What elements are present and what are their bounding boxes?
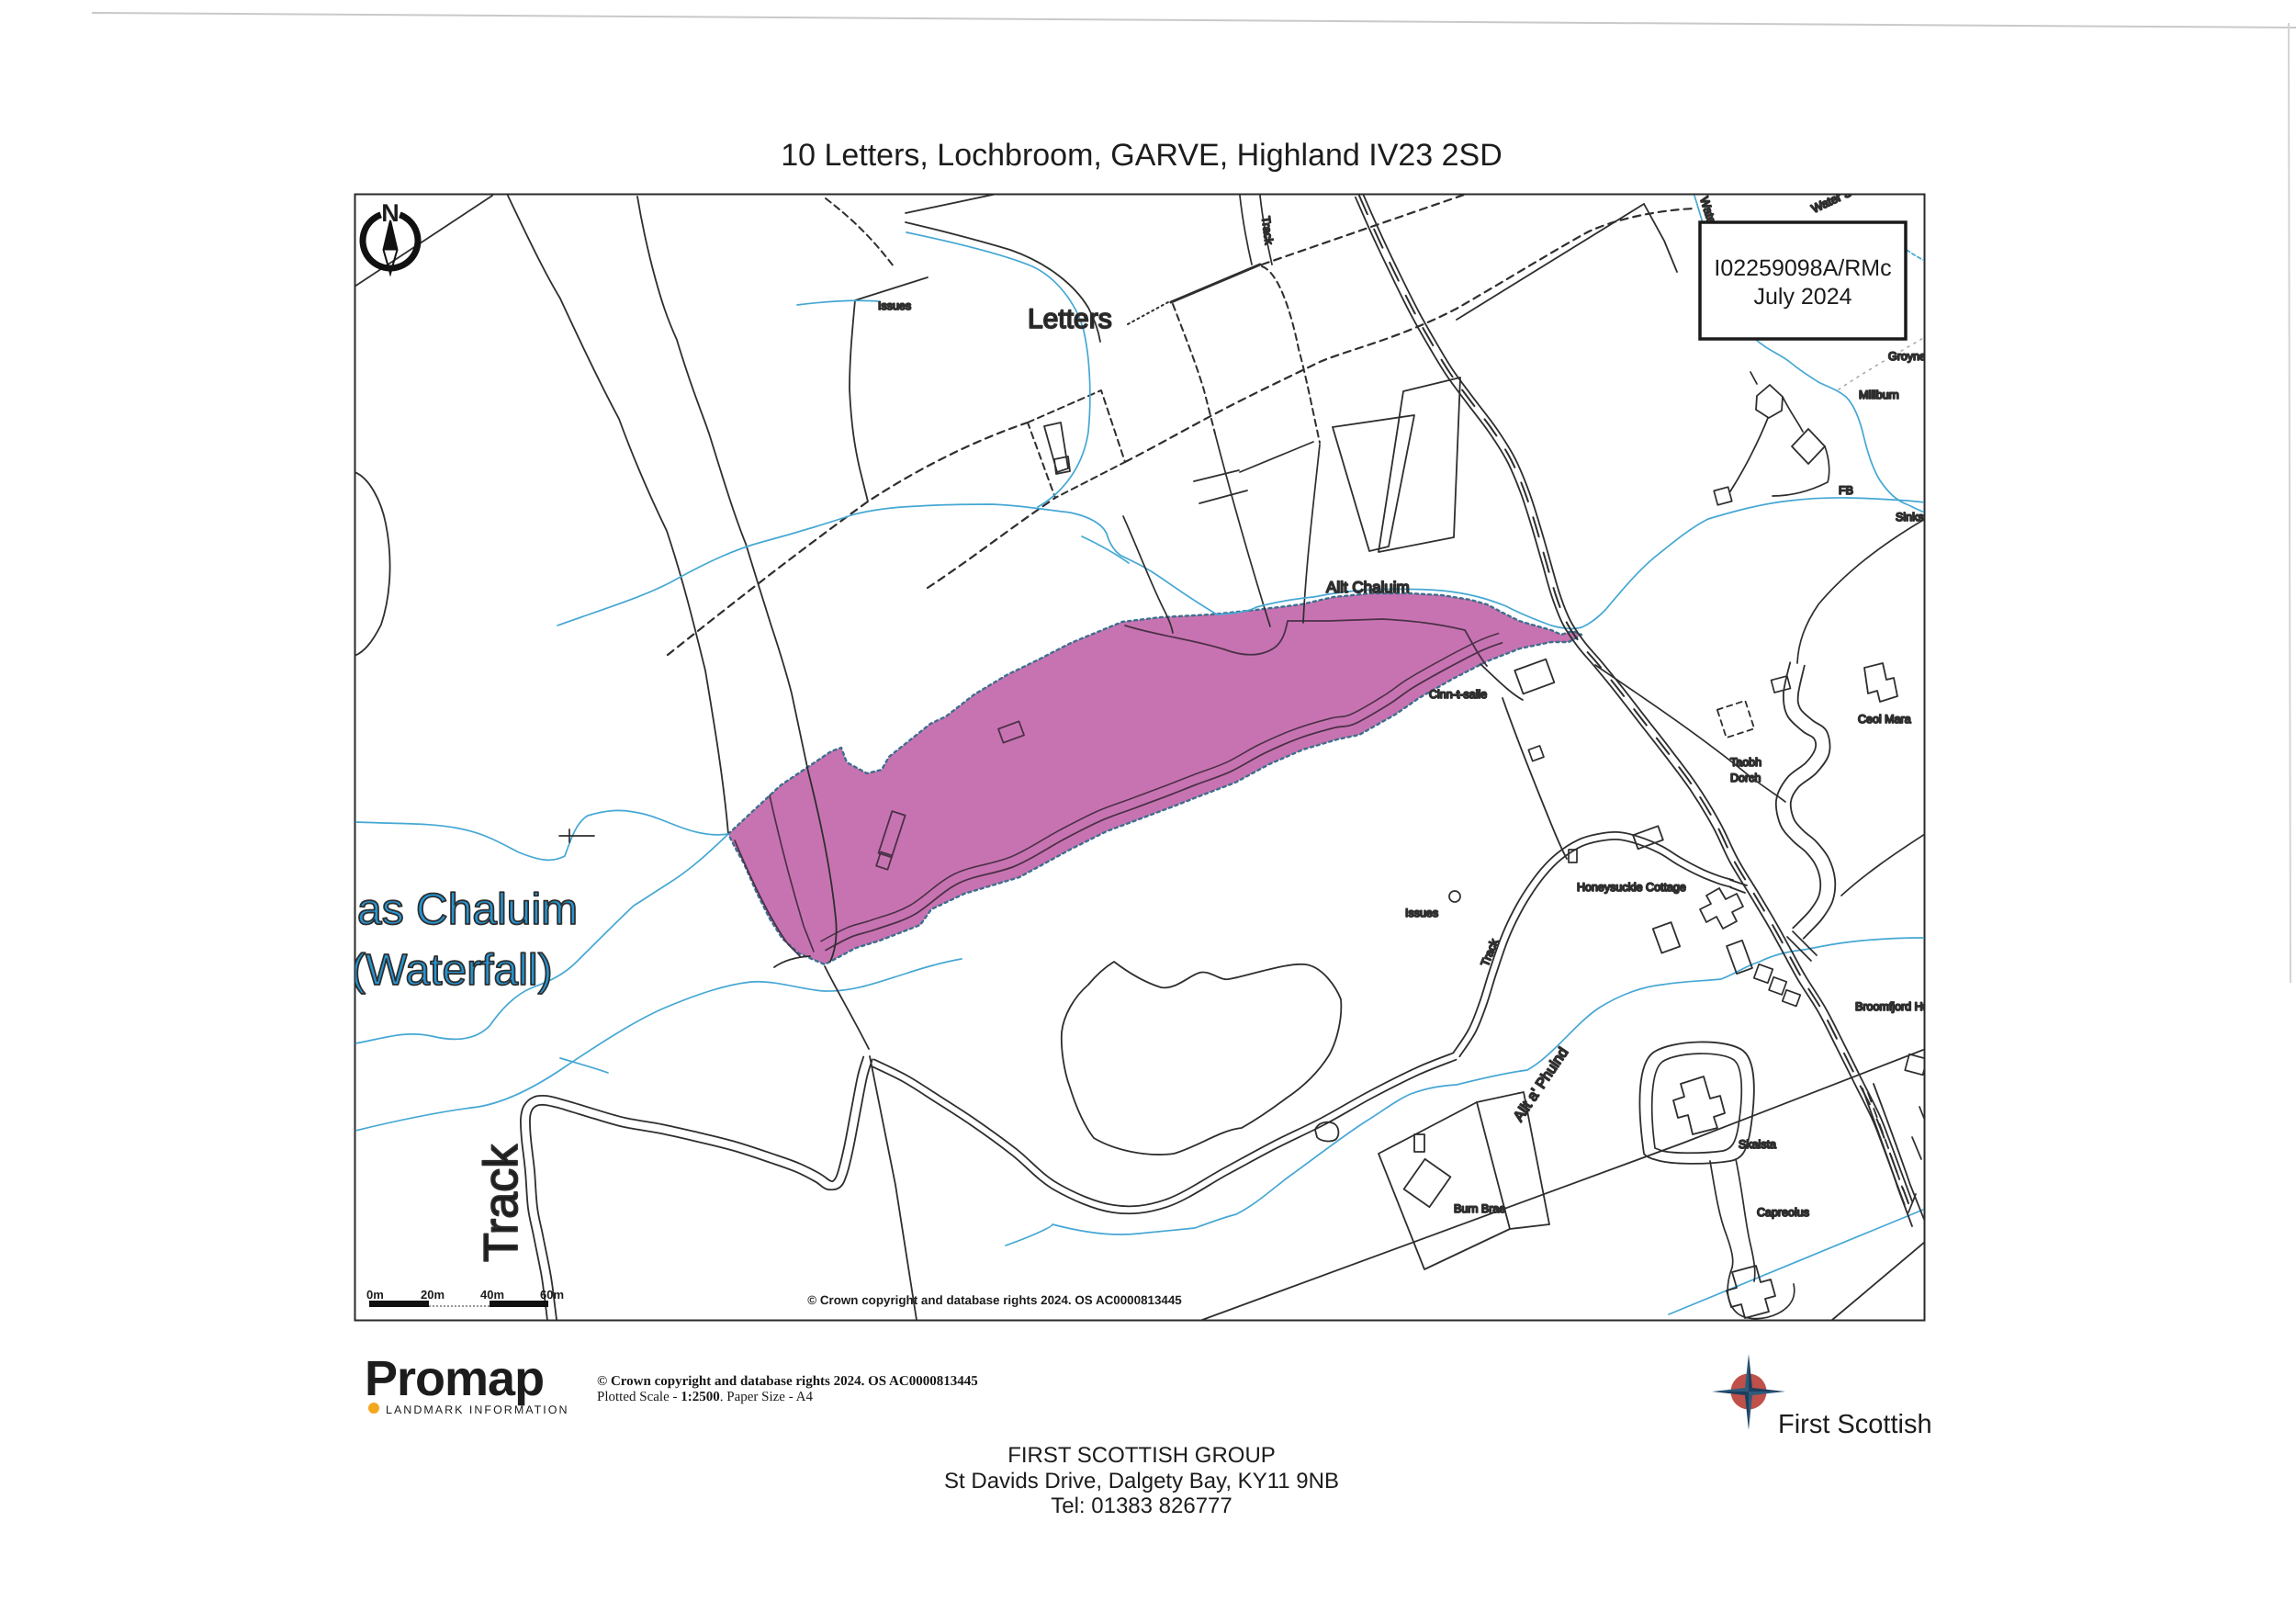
svg-text:Burn Brae: Burn Brae: [1454, 1202, 1505, 1215]
svg-text:Plotted Scale - 1:2500. Paper: Plotted Scale - 1:2500. Paper Size - A4: [597, 1390, 813, 1404]
svg-text:20m: 20m: [421, 1288, 445, 1302]
svg-text:Dorch: Dorch: [1730, 772, 1761, 784]
svg-text:First Scottish: First Scottish: [1778, 1410, 1932, 1439]
svg-text:Issues: Issues: [878, 299, 911, 312]
svg-text:I02259098A/RMc: I02259098A/RMc: [1714, 255, 1891, 281]
svg-text:Track: Track: [1259, 216, 1276, 246]
svg-text:(Waterfall): (Waterfall): [351, 946, 553, 995]
svg-text:Issues: Issues: [1405, 907, 1438, 919]
svg-text:0m: 0m: [366, 1288, 384, 1302]
svg-text:10 Letters, Lochbroom, GARVE,: 10 Letters, Lochbroom, GARVE, Highland I…: [781, 138, 1503, 173]
svg-text:Groyne: Groyne: [1888, 350, 1926, 363]
svg-text:July 2024: July 2024: [1753, 284, 1851, 310]
svg-text:Honeysuckle Cottage: Honeysuckle Cottage: [1577, 881, 1686, 894]
svg-text:Track: Track: [475, 1144, 528, 1262]
svg-text:40m: 40m: [480, 1288, 504, 1302]
svg-text:Skaista: Skaista: [1739, 1138, 1776, 1151]
svg-text:Promap: Promap: [365, 1351, 544, 1406]
svg-text:© Crown copyright and database: © Crown copyright and database rights 20…: [597, 1374, 978, 1389]
svg-text:60m: 60m: [540, 1288, 564, 1302]
svg-text:Sinks: Sinks: [1896, 511, 1924, 524]
svg-text:LANDMARK INFORMATION: LANDMARK INFORMATION: [386, 1403, 569, 1416]
svg-text:© Crown copyright and database: © Crown copyright and database rights 20…: [807, 1293, 1182, 1307]
svg-text:Taobh: Taobh: [1730, 756, 1761, 769]
svg-text:Broomfjord Hu: Broomfjord Hu: [1855, 1000, 1930, 1013]
svg-text:FIRST SCOTTISH GROUP: FIRST SCOTTISH GROUP: [1007, 1443, 1276, 1468]
svg-text:Ceol Mara: Ceol Mara: [1858, 713, 1911, 726]
svg-text:Capreolus: Capreolus: [1757, 1206, 1809, 1219]
svg-text:Letters: Letters: [1028, 304, 1112, 334]
svg-text:Tel: 01383 826777: Tel: 01383 826777: [1051, 1493, 1232, 1518]
svg-text:St Davids Drive, Dalgety Bay,: St Davids Drive, Dalgety Bay, KY11 9NB: [944, 1469, 1339, 1493]
svg-text:Track: Track: [1479, 937, 1502, 968]
svg-text:Cinn-t-saile: Cinn-t-saile: [1429, 688, 1487, 701]
svg-text:Water Se: Water Se: [1809, 182, 1860, 215]
svg-text:Allt Chaluim: Allt Chaluim: [1326, 579, 1410, 596]
svg-text:FB: FB: [1839, 484, 1853, 497]
svg-text:Millburn: Millburn: [1859, 389, 1899, 401]
svg-text:Allt a' Phuind: Allt a' Phuind: [1511, 1045, 1571, 1125]
svg-text:as Chaluim: as Chaluim: [357, 885, 578, 934]
